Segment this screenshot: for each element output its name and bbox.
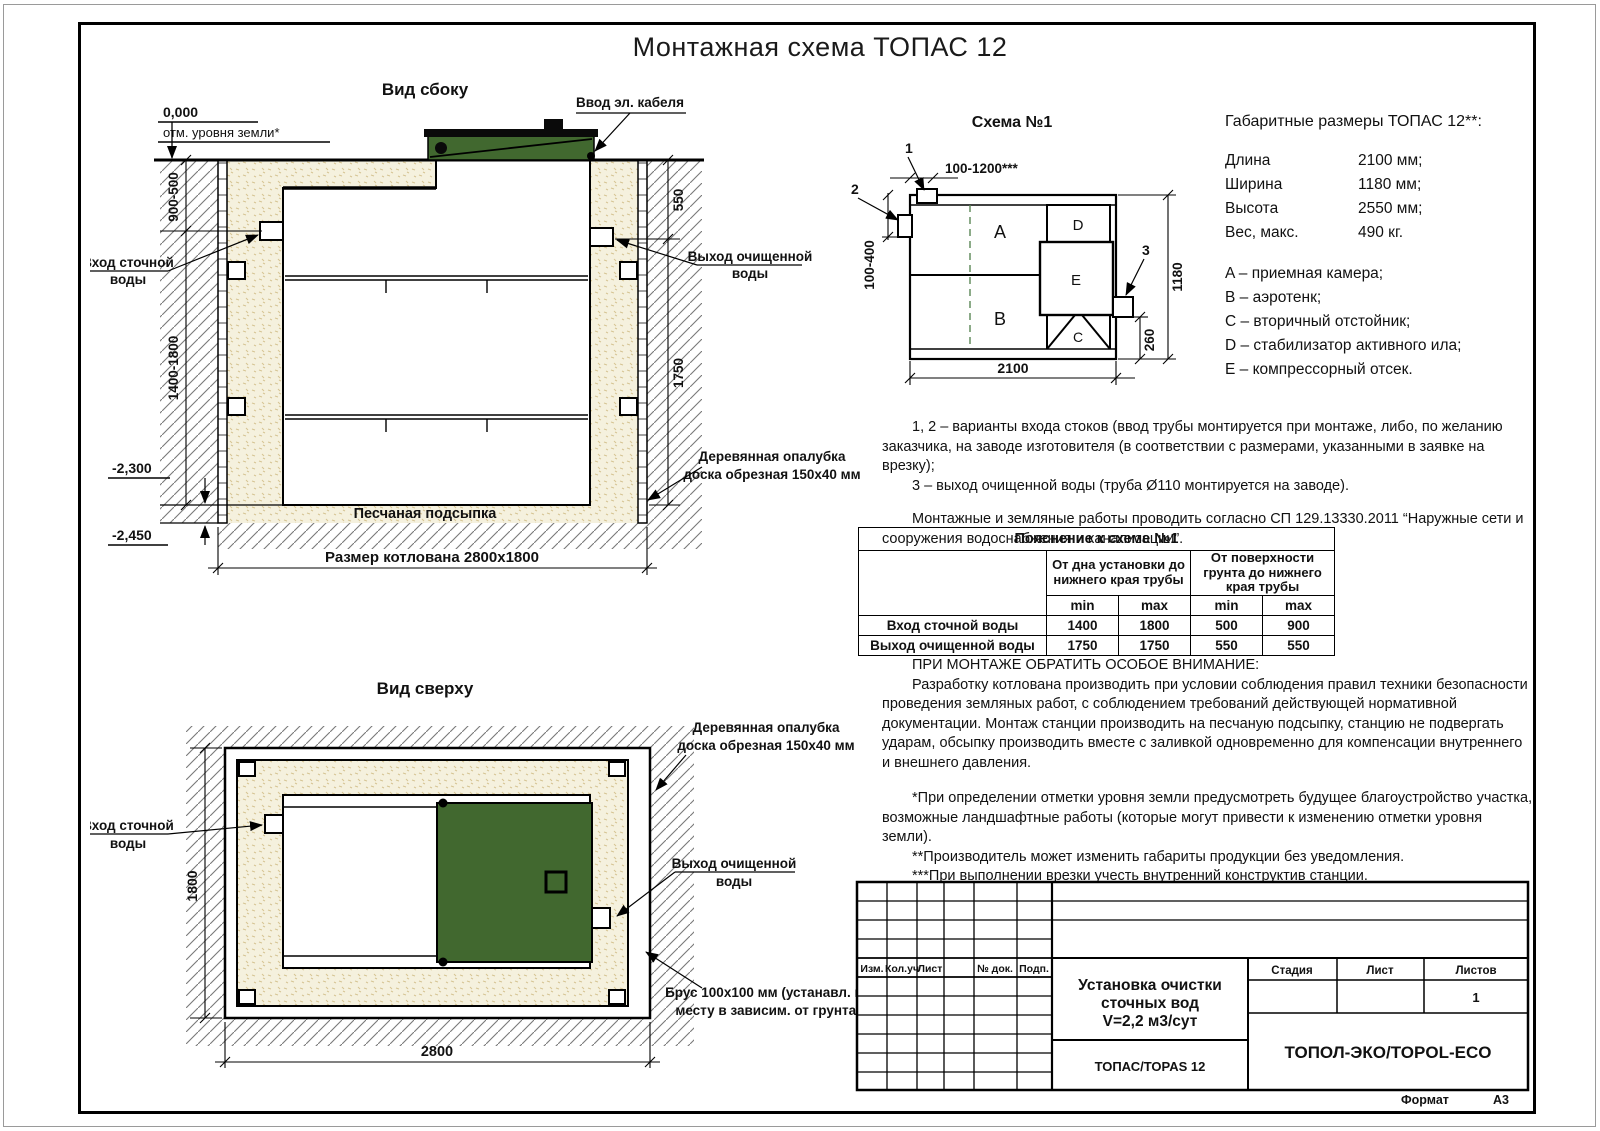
svg-text:воды: воды <box>732 266 768 281</box>
svg-text:отм. уровня земли*: отм. уровня земли* <box>163 125 280 140</box>
svg-text:воды: воды <box>716 874 752 889</box>
warning-paragraph: Разработку котлована производить при усл… <box>882 676 1534 774</box>
compartment-c: C <box>1073 329 1083 345</box>
company-name: ТОПОЛ-ЭКО/TOPOL-ECO <box>1285 1043 1492 1062</box>
dim-1400-1800: 1400-1800 <box>166 336 181 401</box>
schema-dim-top: 100-1200*** <box>945 161 1019 176</box>
format-value: А3 <box>1493 1093 1509 1107</box>
schema-drawing: Схема №1 A B D E C 1 2 3 <box>830 95 1210 395</box>
rev-header-ndok: № док. <box>977 963 1013 975</box>
dim-1750: 1750 <box>671 358 686 388</box>
format-label: Формат <box>1401 1093 1449 1107</box>
compartment-d: D <box>1073 217 1084 234</box>
lid-vent-square <box>546 872 566 892</box>
schema-marker-2: 2 <box>851 181 859 197</box>
outlet-pipe <box>590 228 613 246</box>
lid-hinge-bottom <box>439 958 448 967</box>
spec-row: Длина2100 мм; <box>1225 151 1530 170</box>
lid-bolt <box>435 142 447 154</box>
svg-text:Выход очищенной: Выход очищенной <box>672 856 797 871</box>
table-caption: Пояснение к схеме №1 <box>859 528 1335 551</box>
lid-top-bar <box>424 129 598 137</box>
side-view-title: Вид сбоку <box>382 80 469 99</box>
tank-lid-footprint <box>437 803 592 962</box>
schema-marker-3: 3 <box>1142 242 1150 258</box>
svg-text:Ввод эл. кабеля: Ввод эл. кабеля <box>576 95 684 110</box>
table-max-header: max <box>1119 595 1191 615</box>
legend-item: E – компрессорный отсек. <box>1225 360 1530 379</box>
table-max-header: max <box>1263 595 1335 615</box>
legend-item: C – вторичный отстойник; <box>1225 312 1530 331</box>
zero-level-mark: 0,000 отм. уровня земли* <box>158 104 330 158</box>
schema-marker-1: 1 <box>905 140 913 156</box>
svg-text:месту в зависим. от грунта): месту в зависим. от грунта) <box>675 1003 860 1018</box>
svg-text:-2,450: -2,450 <box>112 527 152 543</box>
rev-header-koluch: Кол.уч <box>885 963 919 975</box>
table-col-group-2: От поверхности грунта до нижнего края тр… <box>1191 551 1335 596</box>
dim-550: 550 <box>671 189 686 212</box>
rev-header-izm: Изм. <box>860 963 883 975</box>
svg-text:Брус 100x100 мм (устанавл. по: Брус 100x100 мм (устанавл. по <box>665 985 870 1000</box>
drawing-sheet: Монтажная схема ТОПАС 12 Вид сбоку <box>0 0 1600 1131</box>
svg-text:Деревянная опалубка: Деревянная опалубка <box>693 720 840 735</box>
table-min-header: min <box>1047 595 1119 615</box>
schema-dim-left: 100-400 <box>862 240 877 290</box>
inlet-pipe <box>260 222 283 240</box>
schema-dim-260: 260 <box>1142 329 1157 352</box>
schema-dim-1180: 1180 <box>1170 262 1185 291</box>
cable-entry-point <box>587 152 595 160</box>
svg-text:Вход сточной: Вход сточной <box>90 818 174 833</box>
spec-row: Ширина1180 мм; <box>1225 175 1530 194</box>
note-2: 3 – выход очищенной воды (труба Ø110 мон… <box>882 477 1532 497</box>
schema-pipe-1 <box>917 189 937 203</box>
top-view-title: Вид сверху <box>377 679 474 698</box>
spec-row: Вес, макс.490 кг. <box>1225 223 1530 242</box>
doc-title-line2: сточных вод <box>1101 995 1199 1012</box>
svg-text:Выход очищенной: Выход очищенной <box>688 249 813 264</box>
svg-text:доска обрезная 150х40 мм: доска обрезная 150х40 мм <box>677 738 854 753</box>
formwork-board-left <box>218 160 227 523</box>
sheets-value: 1 <box>1472 990 1479 1005</box>
sand-bed-label: Песчаная подсыпка <box>354 506 498 522</box>
schema-title: Схема №1 <box>972 114 1053 131</box>
product-name: ТОПАС/TOPAS 12 <box>1095 1059 1206 1074</box>
page-title: Монтажная схема ТОПАС 12 <box>560 32 1080 63</box>
top-view-drawing: Вид сверху 1800 2800 Вход сточной <box>90 660 870 1085</box>
doc-title-line3: V=2,2 м3/сут <box>1103 1013 1198 1030</box>
rev-header-podp: Подп. <box>1019 963 1049 975</box>
side-view-drawing: Вид сбоку <box>90 75 865 600</box>
svg-text:Деревянная опалубка: Деревянная опалубка <box>699 449 846 464</box>
tank-body <box>283 160 590 505</box>
legend-item: A – приемная камера; <box>1225 264 1530 283</box>
footnote-1: *При определении отметки уровня земли пр… <box>882 789 1534 848</box>
schema-pipe-2 <box>898 215 912 237</box>
specs-title: Габаритные размеры ТОПАС 12**: <box>1225 112 1530 131</box>
inlet-pipe-top <box>265 815 283 833</box>
svg-text:воды: воды <box>110 836 146 851</box>
spec-row: Высота2550 мм; <box>1225 199 1530 218</box>
formwork-board-right <box>638 160 647 523</box>
compartment-legend: A – приемная камера; B – аэротенк; C – в… <box>1225 264 1530 379</box>
specs-block: Габаритные размеры ТОПАС 12**: Длина2100… <box>1225 112 1530 384</box>
compartment-a: A <box>994 222 1006 242</box>
legend-item: D – стабилизатор активного ила; <box>1225 336 1530 355</box>
legend-item: B – аэротенк; <box>1225 288 1530 307</box>
ground-hatch-bottom <box>218 523 702 549</box>
table-row: Выход очищенной воды 1750 1750 550 550 <box>859 635 1335 655</box>
footnote-2: **Производитель может изменить габариты … <box>882 848 1534 868</box>
table-col-group-1: От дна установки до нижнего края трубы <box>1047 551 1191 596</box>
schema-pipe-3 <box>1113 297 1133 317</box>
svg-text:доска обрезная 150х40 мм: доска обрезная 150х40 мм <box>683 467 860 482</box>
explanation-table: Пояснение к схеме №1 От дна установки до… <box>858 527 1335 656</box>
svg-text:воды: воды <box>110 272 146 287</box>
doc-title-line1: Установка очистки <box>1078 977 1222 994</box>
level-2450: -2,450 <box>108 523 218 545</box>
sheets-label: Листов <box>1455 965 1496 977</box>
outlet-pipe-top <box>592 908 610 928</box>
compartment-e: E <box>1071 272 1081 289</box>
note-1: 1, 2 – варианты входа стоков (ввод трубы… <box>882 418 1532 477</box>
title-block: Изм. Кол.уч Лист № док. Подп. Дата Стади… <box>855 880 1535 1110</box>
table-row: Вход сточной воды 1400 1800 500 900 <box>859 615 1335 635</box>
svg-text:-2,300: -2,300 <box>112 460 152 476</box>
sheet-label: Лист <box>1366 965 1394 977</box>
lid-hinge-top <box>439 799 448 808</box>
dim-900-500: 900-500 <box>166 172 181 222</box>
svg-text:0,000: 0,000 <box>163 104 198 120</box>
warning-title: ПРИ МОНТАЖЕ ОБРАТИТЬ ОСОБОЕ ВНИМАНИЕ: <box>882 656 1534 676</box>
dim-2800: 2800 <box>421 1044 453 1060</box>
table-corner-cell <box>859 551 1047 616</box>
table-min-header: min <box>1191 595 1263 615</box>
rev-header-list: Лист <box>918 963 943 975</box>
lid-vent-cap <box>544 119 563 130</box>
svg-text:Вход сточной: Вход сточной <box>90 255 174 270</box>
dim-1800: 1800 <box>184 870 200 901</box>
pit-dim-label: Размер котлована 2800x1800 <box>325 549 539 566</box>
schema-dim-2100: 2100 <box>997 360 1028 376</box>
stage-label: Стадия <box>1271 965 1312 977</box>
compartment-b: B <box>994 309 1006 329</box>
